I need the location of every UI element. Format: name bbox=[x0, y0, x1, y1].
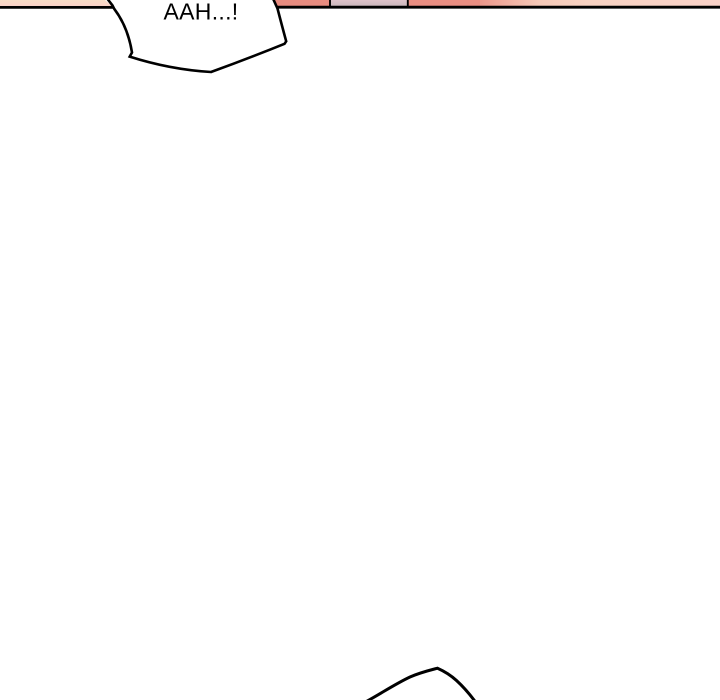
svg-text:AAH...!: AAH...! bbox=[164, 0, 239, 25]
